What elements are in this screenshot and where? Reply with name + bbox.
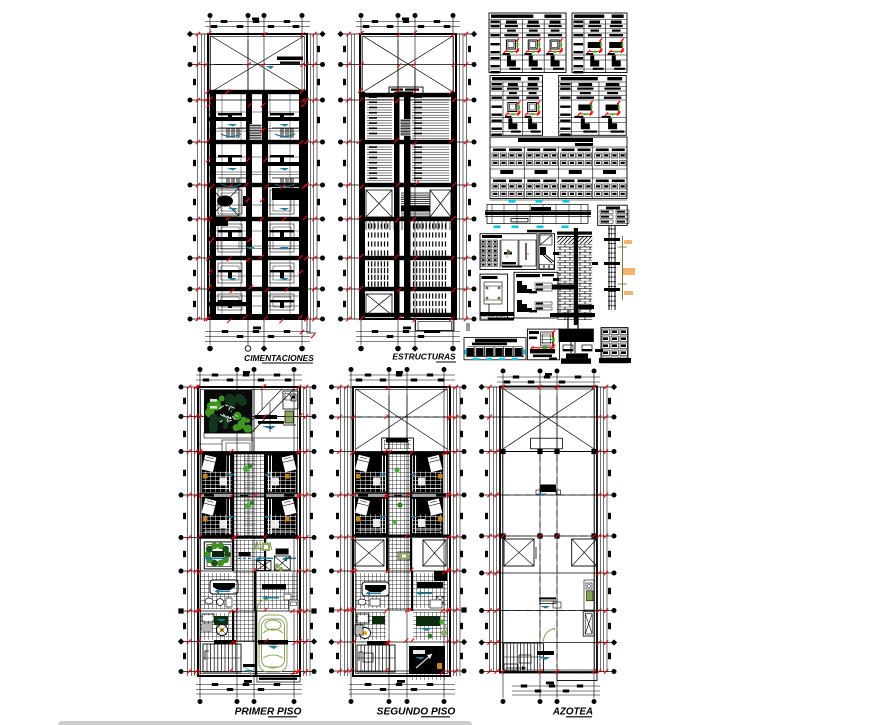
svg-text:ESTRUCTURAS: ESTRUCTURAS <box>392 352 456 362</box>
svg-text:SEGUNDO PISO: SEGUNDO PISO <box>377 707 456 718</box>
svg-text:AZOTEA: AZOTEA <box>552 707 593 718</box>
svg-text:PRIMER PISO: PRIMER PISO <box>235 707 302 718</box>
svg-text:CIMENTACIONES: CIMENTACIONES <box>244 353 314 363</box>
